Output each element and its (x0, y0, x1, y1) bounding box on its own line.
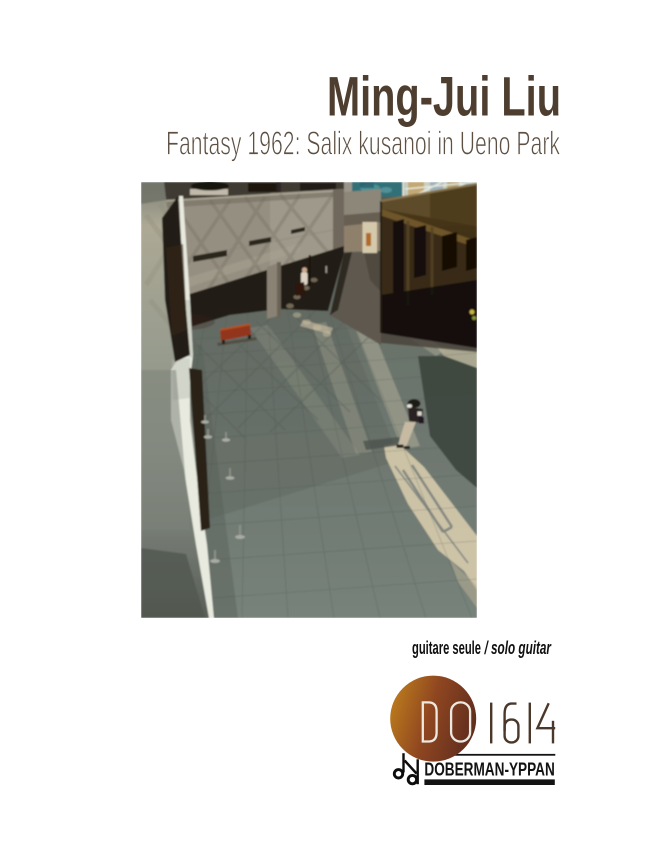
svg-text:DOBERMAN-YPPAN: DOBERMAN-YPPAN (424, 758, 554, 779)
svg-text:Ming-Jui Liu: Ming-Jui Liu (327, 66, 561, 128)
svg-text:guitare seule: guitare seule (412, 638, 481, 658)
svg-text:/ solo guitar: / solo guitar (484, 638, 552, 658)
svg-text:Fantasy 1962: Salix kusanoi in: Fantasy 1962: Salix kusanoi in Ueno Park (166, 125, 560, 162)
